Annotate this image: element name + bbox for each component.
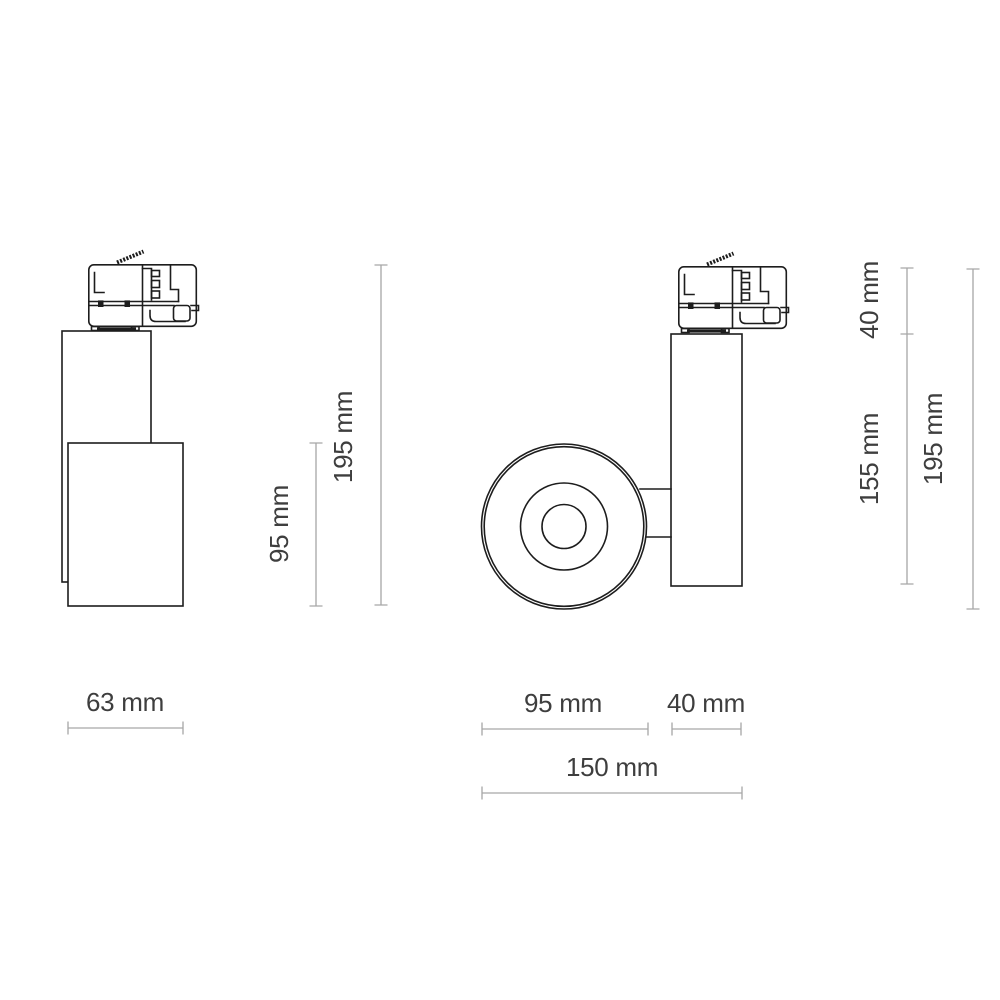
- dim-label-side-155: 155 mm: [854, 413, 884, 505]
- track-adapter-side: [679, 254, 789, 333]
- dim-label-front-95: 95 mm: [264, 485, 294, 563]
- dim-line-side-40-bottom: [672, 723, 741, 736]
- dim-line-side-195: [967, 269, 980, 609]
- technical-drawing: 95 mm 195 mm 63 mm 40 mm 155 mm 195 mm 9…: [0, 0, 1000, 1000]
- front-view: [62, 252, 199, 607]
- dim-line-side-150: [482, 787, 742, 800]
- dim-label-side-40: 40 mm: [854, 261, 884, 339]
- dim-label-side-95: 95 mm: [524, 688, 602, 718]
- fixture-body-side: [671, 334, 742, 586]
- dim-line-front-195: [375, 265, 388, 605]
- dim-label-front-63: 63 mm: [86, 687, 164, 717]
- led-circle: [542, 505, 586, 549]
- dim-label-side-150: 150 mm: [566, 752, 658, 782]
- dim-line-front-63: [68, 722, 183, 735]
- lamp-head-front: [68, 443, 183, 606]
- dim-label-front-195: 195 mm: [328, 391, 358, 483]
- dim-line-side-95: [482, 723, 648, 736]
- dim-line-front-95: [310, 443, 323, 606]
- dimension-drawing-canvas: 95 mm 195 mm 63 mm 40 mm 155 mm 195 mm 9…: [0, 0, 1000, 1000]
- side-view: [482, 254, 789, 610]
- dim-label-side-40-bottom: 40 mm: [667, 688, 745, 718]
- dim-line-side-40-155: [901, 268, 914, 584]
- dim-label-side-195: 195 mm: [918, 393, 948, 485]
- track-adapter-front: [89, 252, 199, 331]
